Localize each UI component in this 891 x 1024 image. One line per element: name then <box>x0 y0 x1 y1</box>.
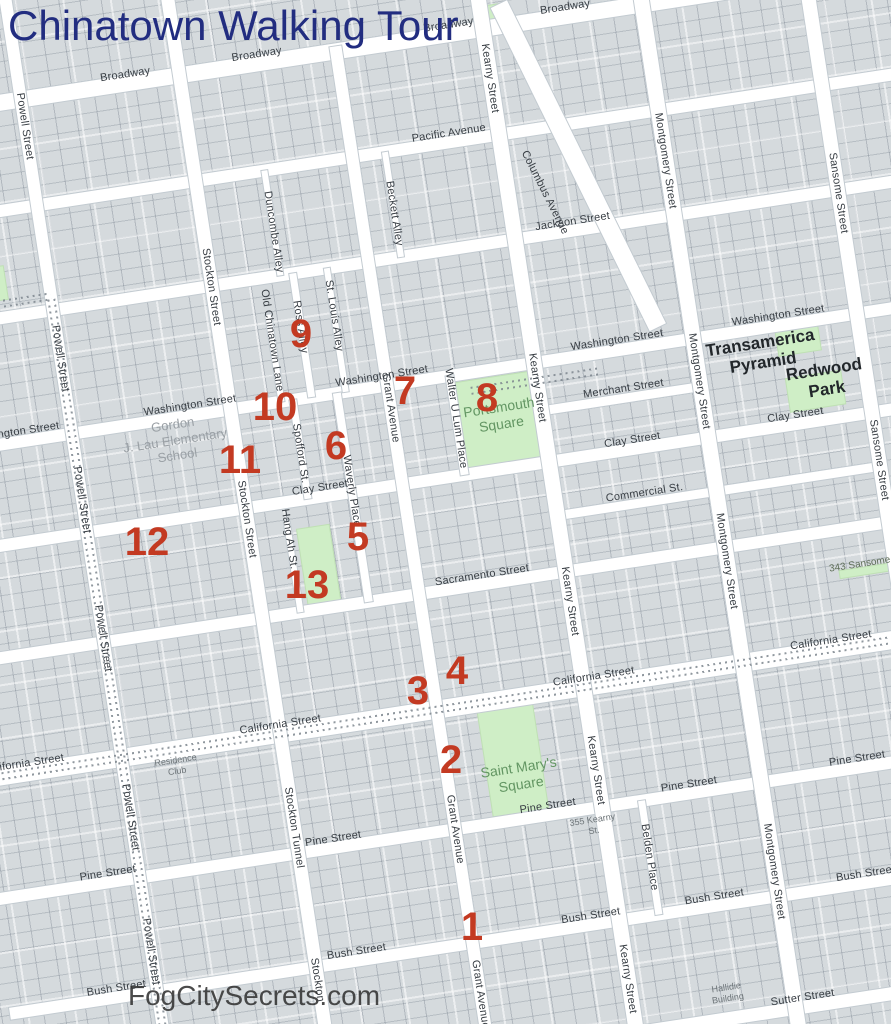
tour-stop-6: 6 <box>325 426 347 466</box>
tour-stop-9: 9 <box>290 314 312 354</box>
tour-stop-2: 2 <box>440 740 462 780</box>
tour-stop-8: 8 <box>476 378 498 418</box>
tour-stop-1: 1 <box>461 907 483 947</box>
tour-stop-10: 10 <box>253 387 298 427</box>
tour-stop-5: 5 <box>347 517 369 557</box>
tour-stop-3: 3 <box>407 671 429 711</box>
watermark-text: FogCitySecrets.com <box>128 980 380 1012</box>
chinatown-map: BroadwayBroadwayBroadwayBroadwayPacific … <box>0 0 891 1024</box>
page-title: Chinatown Walking Tour <box>8 2 459 50</box>
tour-stop-7: 7 <box>394 371 416 411</box>
tour-stop-4: 4 <box>446 651 468 691</box>
tour-stop-13: 13 <box>285 565 330 605</box>
tour-stop-11: 11 <box>219 440 261 480</box>
map-rotated-layer: BroadwayBroadwayBroadwayBroadwayPacific … <box>0 0 891 1024</box>
tour-stop-12: 12 <box>125 522 170 562</box>
